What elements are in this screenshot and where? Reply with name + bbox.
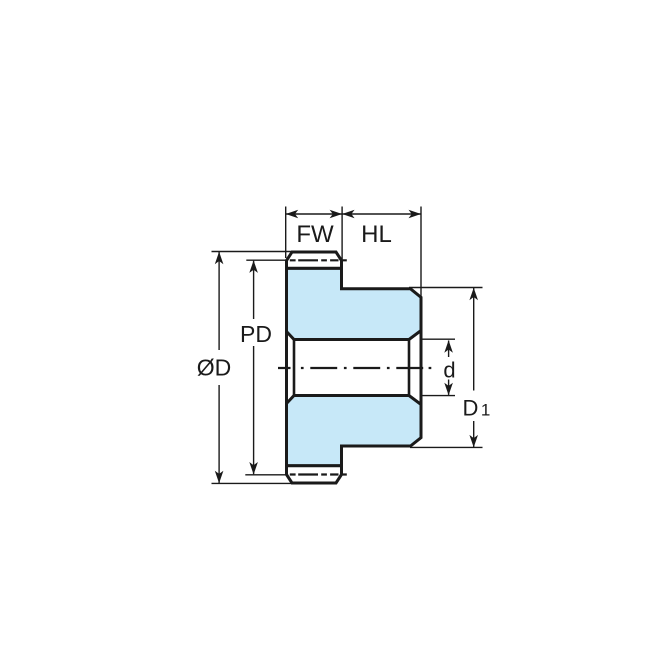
svg-text:FW: FW: [296, 221, 334, 248]
svg-text:ØD: ØD: [197, 355, 232, 381]
svg-text:d: d: [443, 358, 455, 383]
svg-text:PD: PD: [240, 321, 272, 347]
svg-text:HL: HL: [361, 221, 392, 248]
